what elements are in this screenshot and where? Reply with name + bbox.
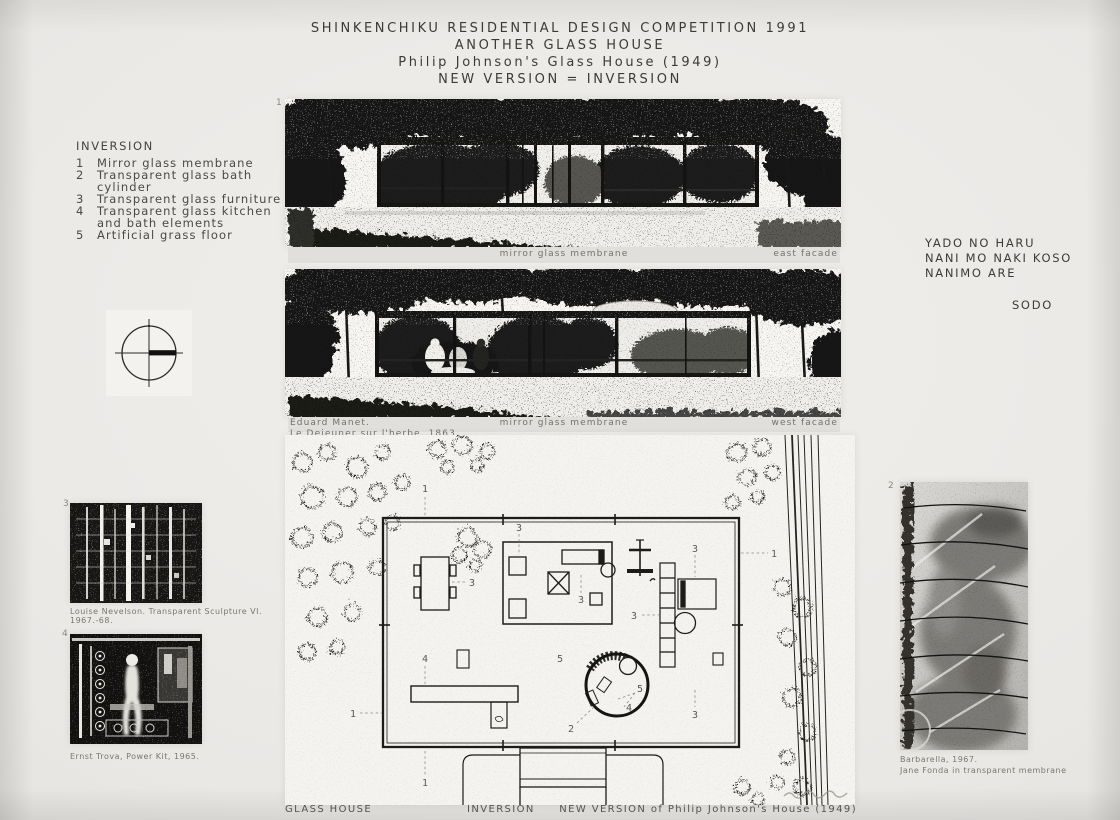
footer-label-inversion: INVERSION xyxy=(467,804,535,815)
title-line-1: SHINKENCHIKU RESIDENTIAL DESIGN COMPETIT… xyxy=(0,20,1120,37)
north-compass-icon xyxy=(106,310,192,396)
figure-number-nevelson: 3 xyxy=(63,499,69,509)
footer-label-new-version: NEW VERSION of Philip Johnson's House (1… xyxy=(559,804,857,815)
caption-barbarella-2: Jane Fonda in transparent membrane xyxy=(900,766,1067,775)
title-line-4: NEW VERSION = INVERSION xyxy=(0,71,1120,88)
legend-item: 2 Transparent glass bath cylinder xyxy=(76,169,291,193)
caption-west-right: west facade xyxy=(288,418,838,428)
foreground-lawn xyxy=(285,207,841,247)
trova-power-kit-photo xyxy=(70,634,202,744)
title-line-2: ANOTHER GLASS HOUSE xyxy=(0,37,1120,54)
figure-number-trova: 4 xyxy=(62,629,68,639)
figure-number-photo-east: 1 xyxy=(276,98,282,108)
inversion-legend: INVERSION 1 Mirror glass membrane 2 Tran… xyxy=(76,139,291,241)
haiku-text: YADO NO HARU NANI MO NAKI KOSO NANIMO AR… xyxy=(925,236,1085,281)
foreground-lawn xyxy=(285,377,841,417)
caption-barbarella-1: Barbarella, 1967. xyxy=(900,755,978,764)
site-plan-drawing: 3 3 3 3 3 3 4 1 1 1 1 5 5 4 2 xyxy=(285,435,855,805)
photo-west-facade xyxy=(285,269,841,417)
caption-nevelson: Louise Nevelson. Transparent Sculpture V… xyxy=(70,607,290,625)
board-title: SHINKENCHIKU RESIDENTIAL DESIGN COMPETIT… xyxy=(0,20,1120,88)
title-line-3: Philip Johnson's Glass House (1949) xyxy=(0,54,1120,71)
legend-item: 5 Artificial grass floor xyxy=(76,229,291,241)
footer-label-glass-house: GLASS HOUSE xyxy=(285,804,372,815)
caption-east-right: east facade xyxy=(288,249,838,259)
haiku-signature: SODO xyxy=(925,298,1053,312)
competition-board: { "header": { "line1": "SHINKENCHIKU RES… xyxy=(0,0,1120,820)
handwritten-note-mark xyxy=(780,786,860,802)
nevelson-sculpture-photo xyxy=(70,503,202,603)
legend-title: INVERSION xyxy=(76,139,291,153)
barbarella-photo xyxy=(900,482,1028,750)
photo-east-facade xyxy=(285,99,841,247)
legend-item: 4 Transparent glass kitchen and bath ele… xyxy=(76,205,291,229)
caption-trova: Ernst Trova, Power Kit, 1965. xyxy=(70,752,290,761)
figure-number-barbarella: 2 xyxy=(888,481,894,491)
